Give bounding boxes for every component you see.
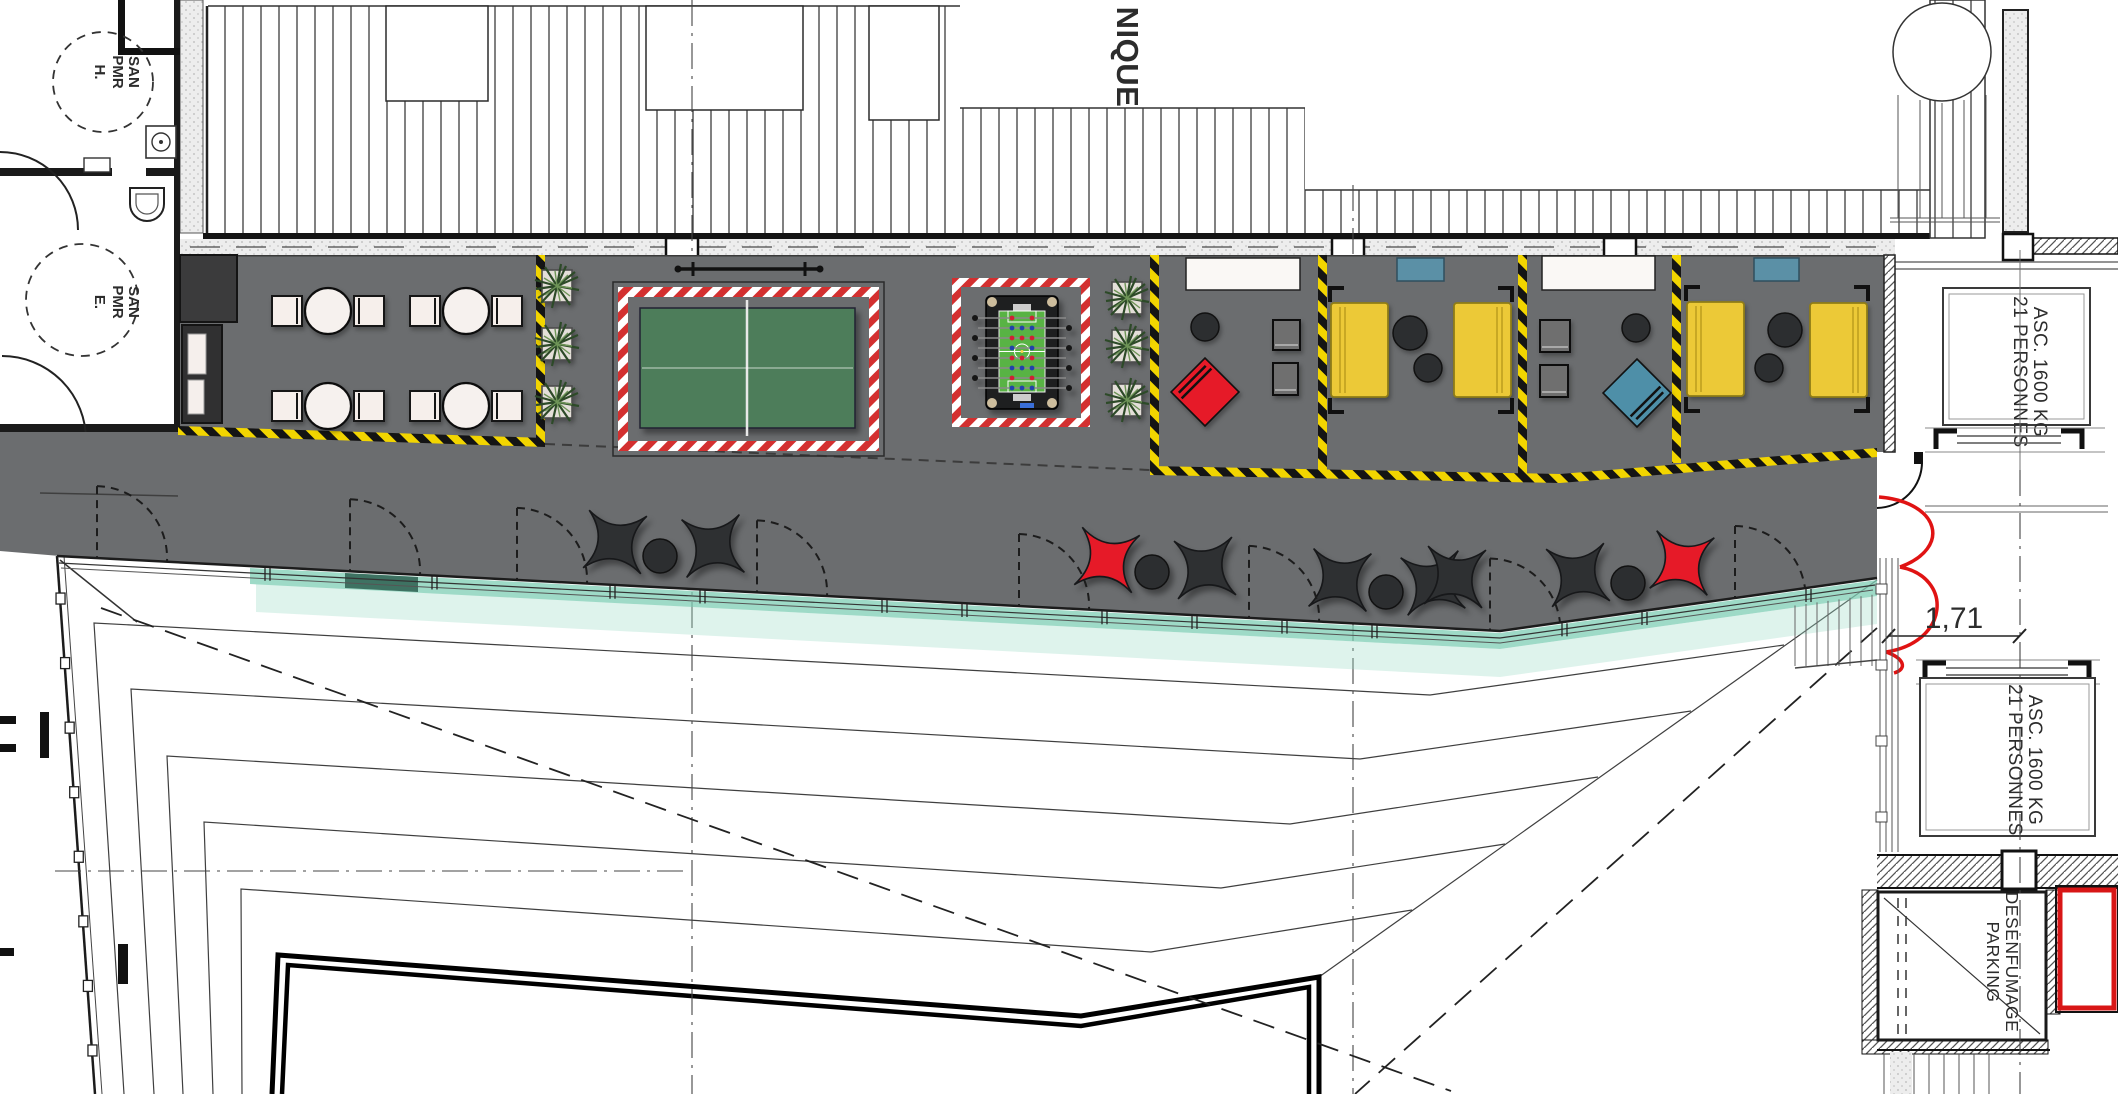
building-wall <box>203 233 1930 239</box>
building-label-text: NIQUE <box>1110 7 1145 108</box>
round-side-table <box>643 539 677 573</box>
appliance <box>188 334 206 374</box>
round-side-table <box>1393 316 1427 350</box>
building-label: NIQUE <box>1110 7 1145 108</box>
floor-plan: NIQUE SAN PMR H. SAN PMR E. <box>0 0 2118 1094</box>
round-side-table <box>1191 313 1219 341</box>
smoke-label-line: PARKING <box>1983 922 2003 1003</box>
room-label-line: H. <box>91 65 108 80</box>
appliance <box>188 380 204 414</box>
skylight <box>869 6 939 120</box>
round-side-table <box>1611 566 1645 600</box>
room-label-line: PMR <box>109 285 126 319</box>
wall-band <box>2003 10 2028 232</box>
foosball-zone <box>952 278 1090 427</box>
column <box>2002 851 2036 889</box>
elevator-1-label: ASC. 1600 KG 21 PERSONNES <box>2009 296 2050 448</box>
room-label-line: E. <box>91 295 108 309</box>
wall-band <box>1877 855 2118 888</box>
round-side-table <box>1622 314 1650 342</box>
floor-plan-svg: NIQUE SAN PMR H. SAN PMR E. <box>0 0 2118 1094</box>
wc-fixture <box>130 188 164 221</box>
room-label-line: PMR <box>109 55 126 89</box>
round-side-table <box>1135 555 1169 589</box>
sanitary-rooms: SAN PMR H. SAN PMR E. <box>0 0 180 440</box>
skylight <box>646 6 803 110</box>
foosball-table <box>972 296 1072 409</box>
round-side-table <box>1755 354 1783 382</box>
white-bench <box>1186 258 1300 290</box>
smoke-label-line: DESENFUMAGE <box>2002 892 2022 1033</box>
ping-pong-zone <box>613 262 884 456</box>
elevator-label-line: ASC. 1600 KG <box>2024 695 2045 826</box>
round-side-table <box>1768 313 1802 347</box>
red-shaft <box>2060 890 2114 1008</box>
column <box>2003 234 2033 260</box>
round-structure <box>1893 3 1991 101</box>
blue-side-bench <box>1754 258 1799 281</box>
smoke-extraction-room: DESENFUMAGE PARKING <box>1862 890 2060 1054</box>
skylight <box>386 6 488 101</box>
elevator-label-line: 21 PERSONNES <box>2009 296 2030 448</box>
building-side-wall <box>1884 255 1895 452</box>
blue-side-bench <box>1397 258 1444 281</box>
elevator-label-line: 21 PERSONNES <box>2004 684 2025 836</box>
dimension-value: 1,71 <box>1925 602 1983 635</box>
round-side-table <box>1369 575 1403 609</box>
round-side-table <box>1414 354 1442 382</box>
room-label-line: SAN <box>125 56 142 88</box>
bar-counter <box>180 255 237 322</box>
room-label-line: SAN <box>125 286 142 318</box>
elevator-label-line: ASC. 1600 KG <box>2029 307 2050 438</box>
white-bench <box>1542 256 1655 290</box>
elevator-2-label: ASC. 1600 KG 21 PERSONNES <box>2004 684 2045 836</box>
